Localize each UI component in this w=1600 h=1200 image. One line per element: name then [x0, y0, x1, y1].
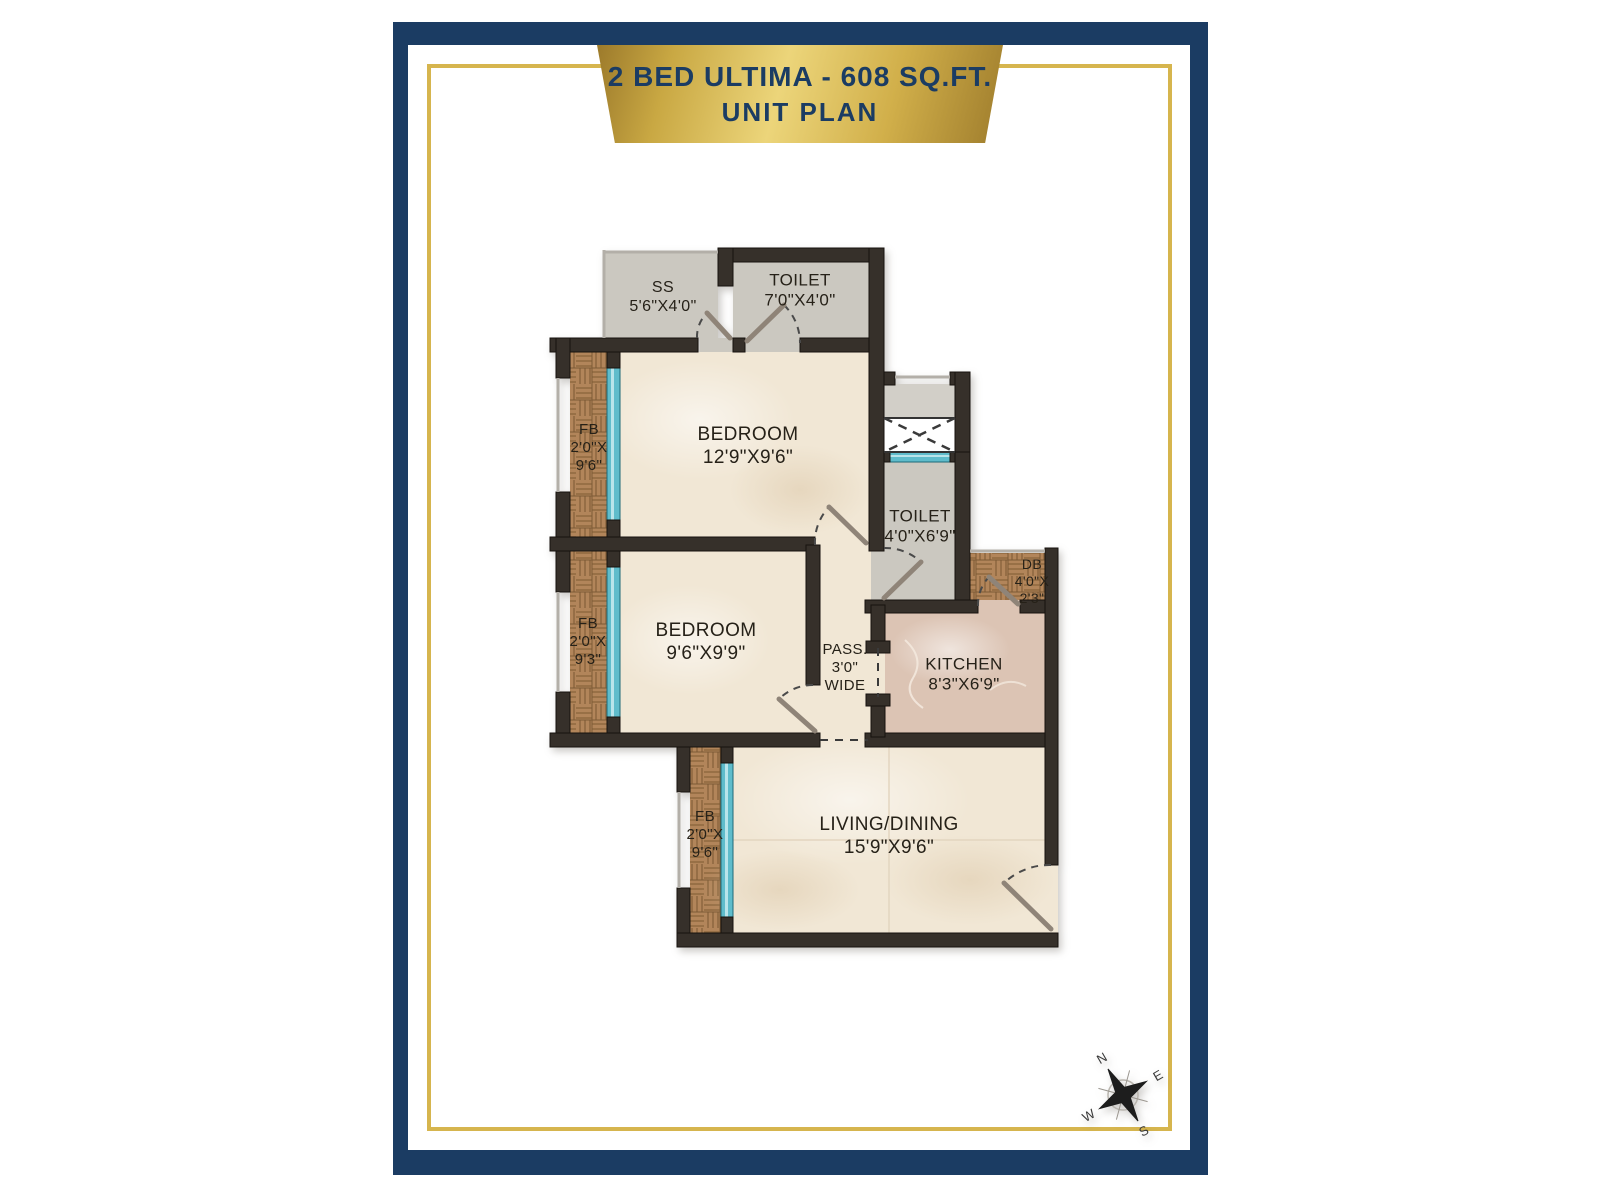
plan-title: 2 BED ULTIMA - 608 SQ.FT.	[608, 61, 992, 93]
compass-west-label: W	[1080, 1106, 1099, 1125]
room-label-db: DB 4'0"X 2'3"	[1015, 556, 1050, 606]
room-label-fb-3: FB 2'0"X 9'6"	[687, 808, 724, 862]
room-label-fb-2: FB 2'0"X 9'3"	[570, 615, 607, 669]
room-label-toilet-2: TOILET 4'0"X6'9"	[884, 507, 955, 548]
room-label-living-dining: LIVING/DINING 15'9"X9'6"	[819, 814, 958, 860]
room-label-bedroom-1: BEDROOM 12'9"X9'6"	[698, 424, 799, 470]
room-label-passage: PASS. 3'0" WIDE	[822, 641, 867, 695]
room-label-toilet-1: TOILET 7'0"X4'0"	[764, 271, 835, 312]
room-label-kitchen: KITCHEN 8'3"X6'9"	[925, 655, 1002, 696]
room-label-fb-1: FB 2'0"X 9'6"	[571, 421, 608, 475]
room-label-bedroom-2: BEDROOM 9'6"X9'9"	[656, 620, 757, 666]
room-label-ss: SS 5'6"X4'0"	[629, 278, 696, 316]
title-banner: 2 BED ULTIMA - 608 SQ.FT. UNIT PLAN	[597, 45, 1003, 143]
compass-north-label: N	[1094, 1049, 1110, 1067]
plan-subtitle: UNIT PLAN	[722, 97, 879, 128]
floor-plan: N E S W	[0, 0, 1600, 1200]
page: 2 BED ULTIMA - 608 SQ.FT. UNIT PLAN	[0, 0, 1600, 1200]
compass-rose-icon: N E S W	[1058, 1029, 1186, 1160]
compass-east-label: E	[1150, 1067, 1165, 1084]
compass-south-label: S	[1136, 1122, 1151, 1139]
